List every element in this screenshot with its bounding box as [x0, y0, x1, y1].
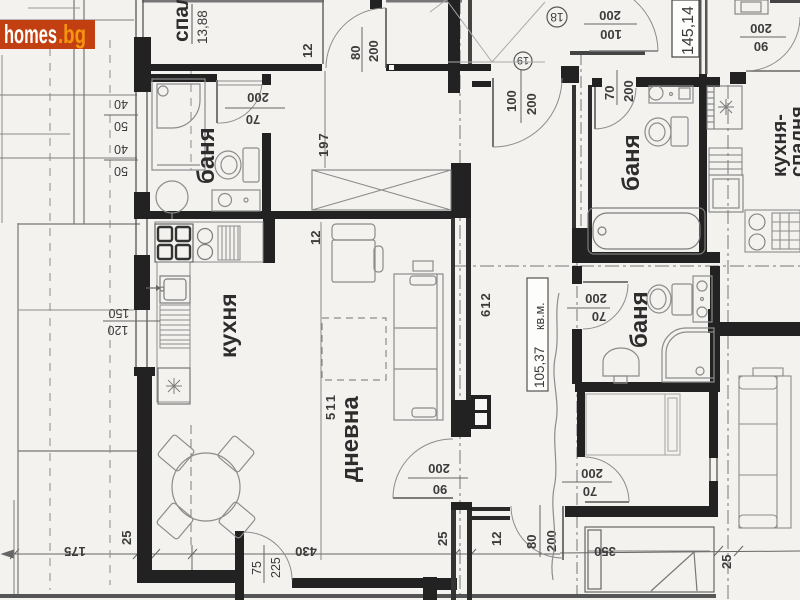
svg-text:баня: баня	[626, 291, 653, 348]
svg-text:197: 197	[316, 132, 331, 157]
svg-text:25: 25	[119, 531, 134, 545]
svg-text:дневна: дневна	[337, 396, 364, 482]
svg-text:200: 200	[524, 93, 539, 115]
svg-text:90: 90	[433, 482, 447, 497]
svg-text:25: 25	[719, 555, 734, 569]
svg-text:200: 200	[599, 8, 621, 23]
svg-text:350: 350	[594, 544, 616, 559]
svg-text:511: 511	[323, 393, 338, 420]
svg-text:кухня: кухня	[215, 293, 241, 358]
svg-text:12: 12	[489, 532, 504, 546]
svg-text:200: 200	[544, 530, 559, 552]
svg-text:200: 200	[621, 80, 636, 102]
svg-text:105,37: 105,37	[532, 347, 547, 388]
svg-text:150: 150	[109, 306, 130, 320]
svg-text:50: 50	[114, 164, 128, 178]
svg-text:баня: баня	[618, 134, 645, 191]
svg-text:13,88: 13,88	[195, 10, 210, 44]
svg-text:кв.м.: кв.м.	[533, 302, 547, 330]
svg-text:.bg: .bg	[58, 19, 86, 49]
svg-text:40: 40	[114, 97, 128, 111]
svg-text:70: 70	[246, 112, 260, 127]
svg-text:80: 80	[348, 46, 363, 60]
svg-text:100: 100	[600, 27, 622, 42]
svg-text:200: 200	[247, 90, 269, 105]
svg-text:спалня: спалня	[170, 0, 193, 42]
svg-text:homes: homes	[4, 19, 57, 49]
svg-text:70: 70	[602, 86, 617, 100]
svg-text:баня: баня	[193, 127, 220, 184]
svg-text:70: 70	[583, 484, 597, 499]
svg-text:200: 200	[366, 40, 381, 62]
svg-text:200: 200	[581, 466, 603, 481]
svg-text:430: 430	[295, 544, 317, 559]
svg-text:12: 12	[300, 44, 315, 58]
svg-text:145,14: 145,14	[680, 6, 697, 55]
svg-text:12: 12	[308, 231, 323, 245]
svg-text:200: 200	[428, 461, 450, 476]
svg-text:225: 225	[269, 557, 283, 578]
svg-text:175: 175	[64, 544, 86, 559]
svg-text:200: 200	[585, 291, 607, 306]
svg-text:75: 75	[250, 561, 264, 575]
svg-text:40: 40	[114, 142, 128, 156]
svg-text:200: 200	[750, 21, 772, 36]
svg-text:19: 19	[517, 54, 529, 66]
svg-text:50: 50	[114, 119, 128, 133]
svg-text:90: 90	[754, 39, 768, 54]
svg-text:80: 80	[524, 535, 539, 549]
svg-text:25: 25	[435, 532, 450, 546]
svg-text:спалня: спалня	[787, 106, 800, 177]
svg-text:120: 120	[108, 323, 129, 337]
svg-text:70: 70	[592, 309, 606, 324]
svg-text:612: 612	[478, 292, 493, 317]
svg-text:100: 100	[504, 90, 519, 112]
svg-text:18: 18	[550, 10, 564, 24]
